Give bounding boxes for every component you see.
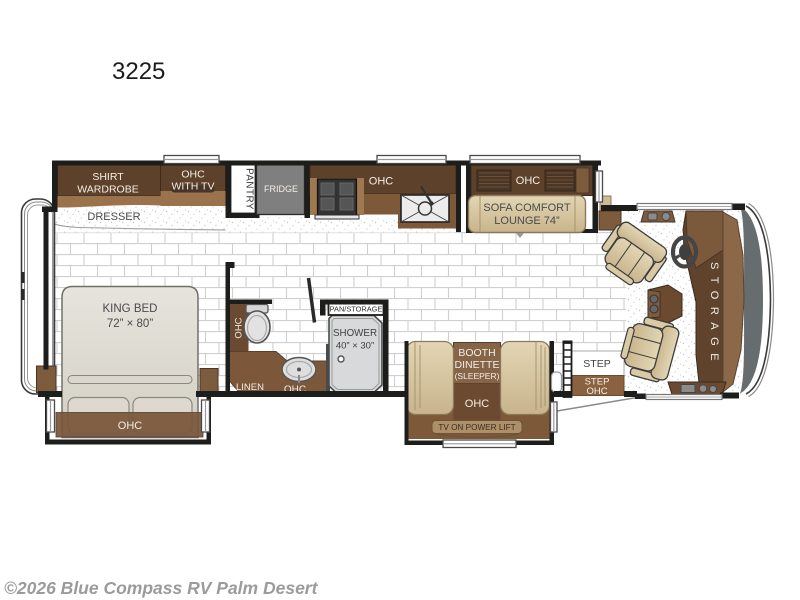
svg-text:72” × 80”: 72” × 80” (107, 318, 154, 330)
svg-text:LOUNGE 74”: LOUNGE 74” (494, 215, 560, 227)
svg-text:PANTRY: PANTRY (244, 168, 255, 210)
svg-text:OHC: OHC (369, 176, 394, 188)
svg-text:STEP: STEP (583, 358, 610, 370)
svg-text:©2026 Blue Compass RV Palm Des: ©2026 Blue Compass RV Palm Desert (4, 578, 319, 598)
svg-text:40” × 30”: 40” × 30” (336, 341, 374, 352)
svg-text:OHC: OHC (234, 317, 245, 338)
svg-text:3225: 3225 (112, 58, 165, 85)
svg-text:BOOTH: BOOTH (458, 347, 495, 359)
svg-text:OHC: OHC (118, 420, 143, 432)
svg-text:SOFA COMFORT: SOFA COMFORT (483, 202, 570, 214)
svg-text:OHC: OHC (181, 169, 205, 181)
svg-text:SHOWER: SHOWER (333, 328, 377, 339)
svg-text:KING BED: KING BED (103, 303, 158, 315)
svg-text:WITH TV: WITH TV (172, 181, 215, 193)
svg-text:PAN/STORAGE: PAN/STORAGE (330, 305, 383, 314)
svg-text:STORAGE: STORAGE (708, 262, 720, 368)
svg-text:(SLEEPER): (SLEEPER) (455, 371, 500, 381)
svg-text:OHC: OHC (465, 398, 490, 410)
svg-text:DRESSER: DRESSER (87, 211, 140, 223)
svg-text:OHC: OHC (516, 175, 541, 187)
svg-text:TV ON POWER LIFT: TV ON POWER LIFT (438, 423, 515, 432)
svg-text:OHC: OHC (586, 386, 607, 397)
svg-text:DINETTE: DINETTE (455, 359, 500, 371)
svg-text:FRIDGE: FRIDGE (264, 184, 298, 194)
svg-text:WARDROBE: WARDROBE (77, 184, 138, 196)
svg-text:SHIRT: SHIRT (92, 171, 124, 183)
